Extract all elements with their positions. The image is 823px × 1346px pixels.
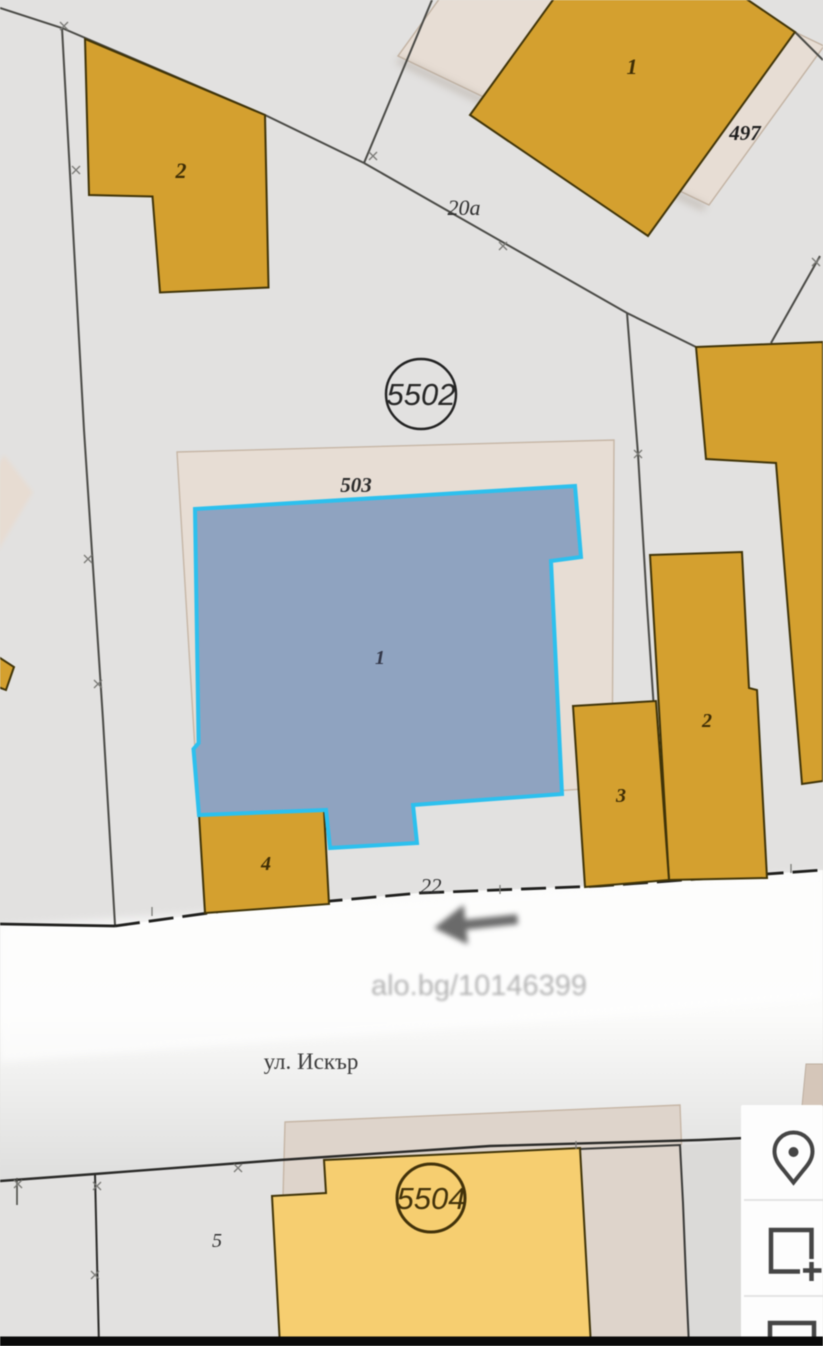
svg-text:5: 5 <box>212 1230 222 1252</box>
svg-text:1: 1 <box>375 647 385 669</box>
svg-text:2: 2 <box>701 710 712 732</box>
svg-text:4: 4 <box>260 853 271 875</box>
svg-text:497: 497 <box>728 121 762 145</box>
svg-text:20a: 20a <box>448 195 481 220</box>
svg-text:alo.bg/10146399: alo.bg/10146399 <box>371 970 587 1002</box>
svg-text:5502: 5502 <box>387 377 456 412</box>
svg-text:3: 3 <box>615 785 626 807</box>
svg-text:5504: 5504 <box>397 1181 466 1216</box>
svg-text:ул. Искър: ул. Искър <box>264 1049 359 1074</box>
svg-text:503: 503 <box>340 473 372 497</box>
svg-text:22: 22 <box>421 874 443 898</box>
svg-text:1: 1 <box>627 54 638 79</box>
svg-text:2: 2 <box>175 158 187 183</box>
